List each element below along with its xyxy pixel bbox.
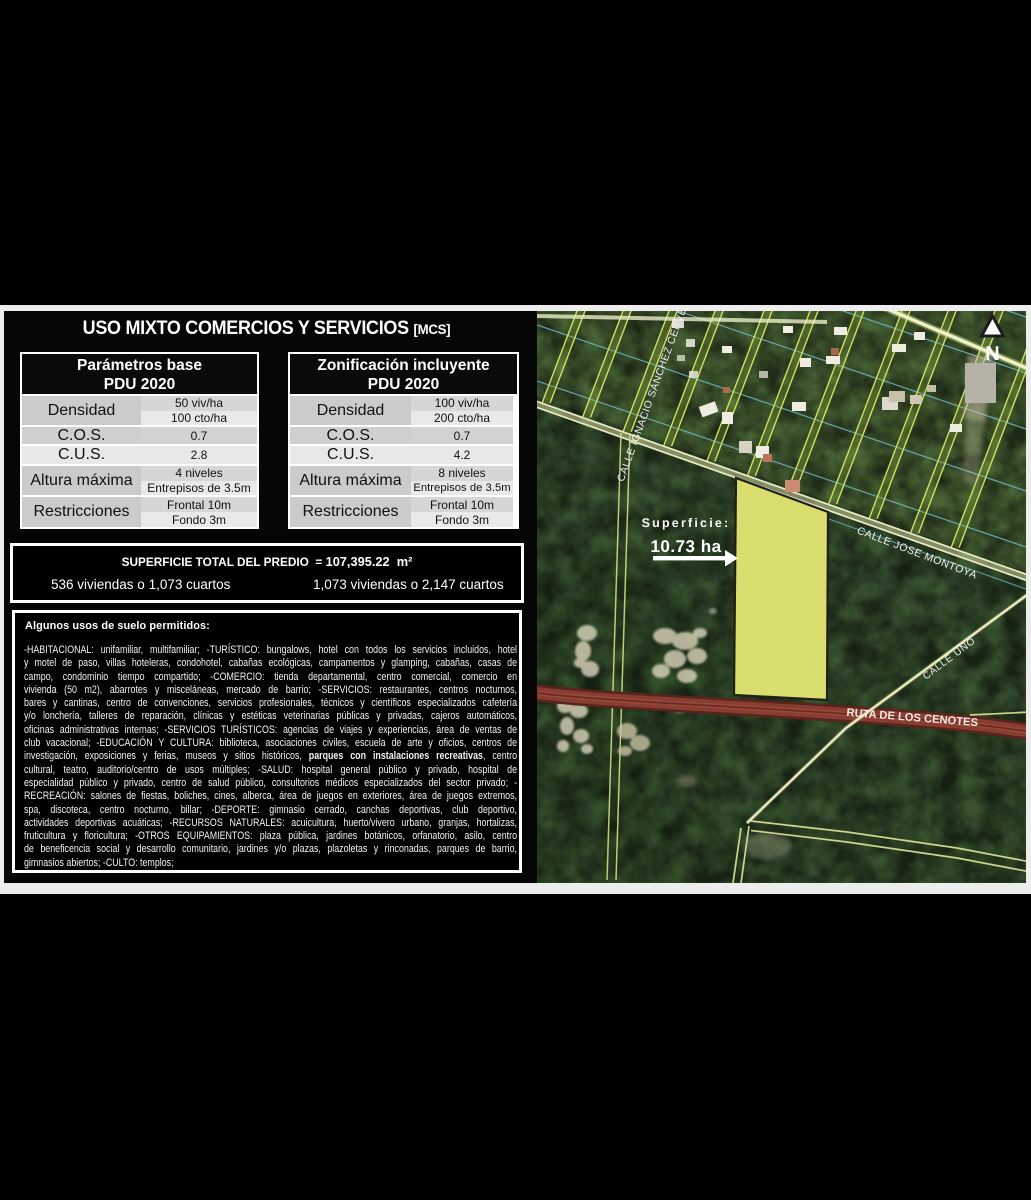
svg-text:10.73 ha: 10.73 ha: [650, 537, 721, 556]
svg-text:Superficie:: Superficie:: [642, 516, 731, 530]
svg-text:N: N: [985, 343, 999, 365]
